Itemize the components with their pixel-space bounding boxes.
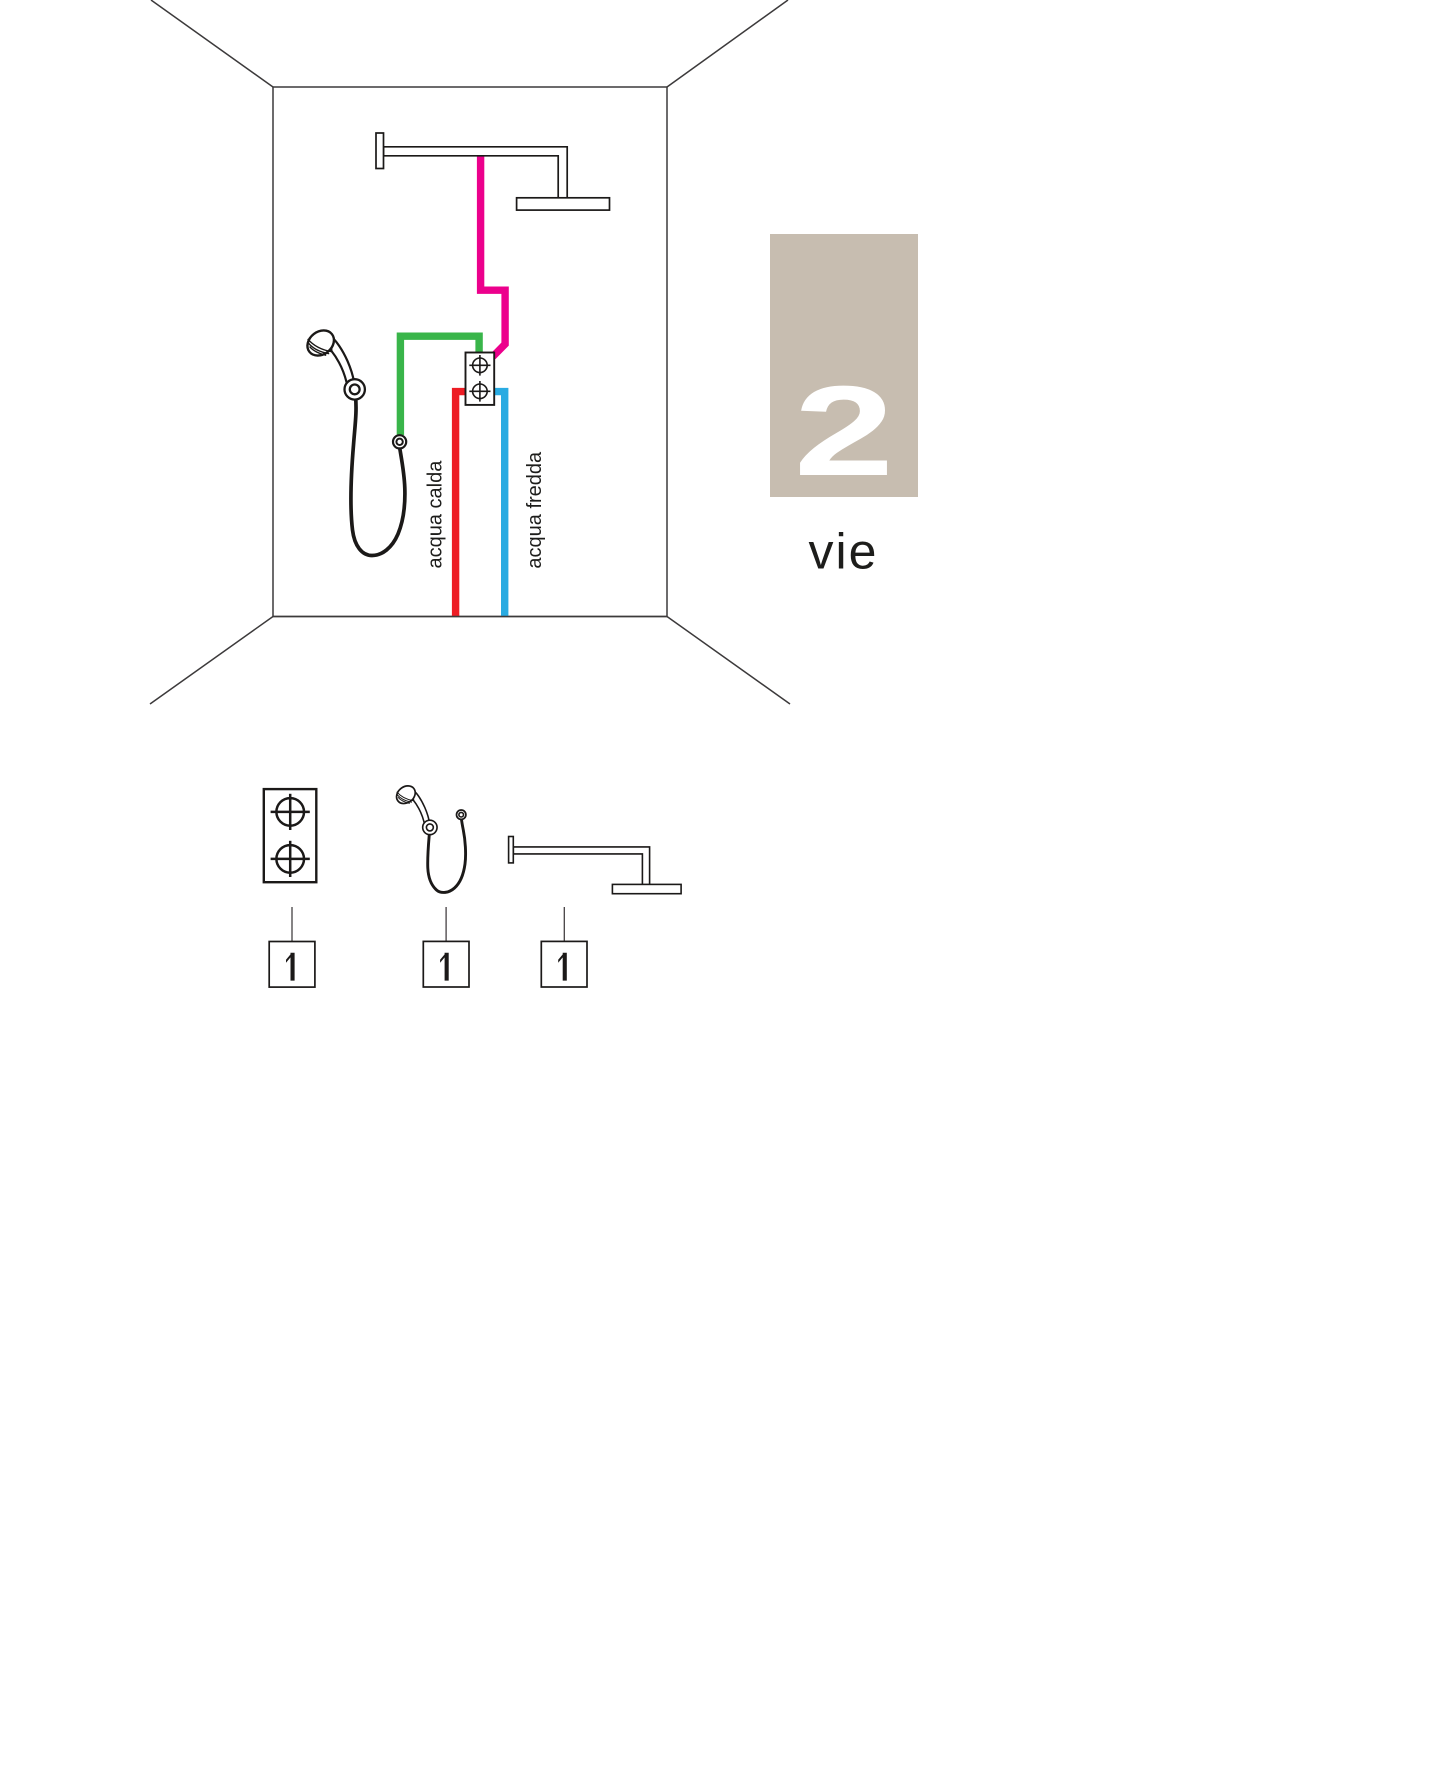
svg-text:vie: vie (809, 524, 879, 580)
svg-text:acqua calda: acqua calda (424, 460, 446, 569)
svg-text:acqua fredda: acqua fredda (524, 451, 546, 569)
svg-text:2: 2 (794, 360, 894, 503)
